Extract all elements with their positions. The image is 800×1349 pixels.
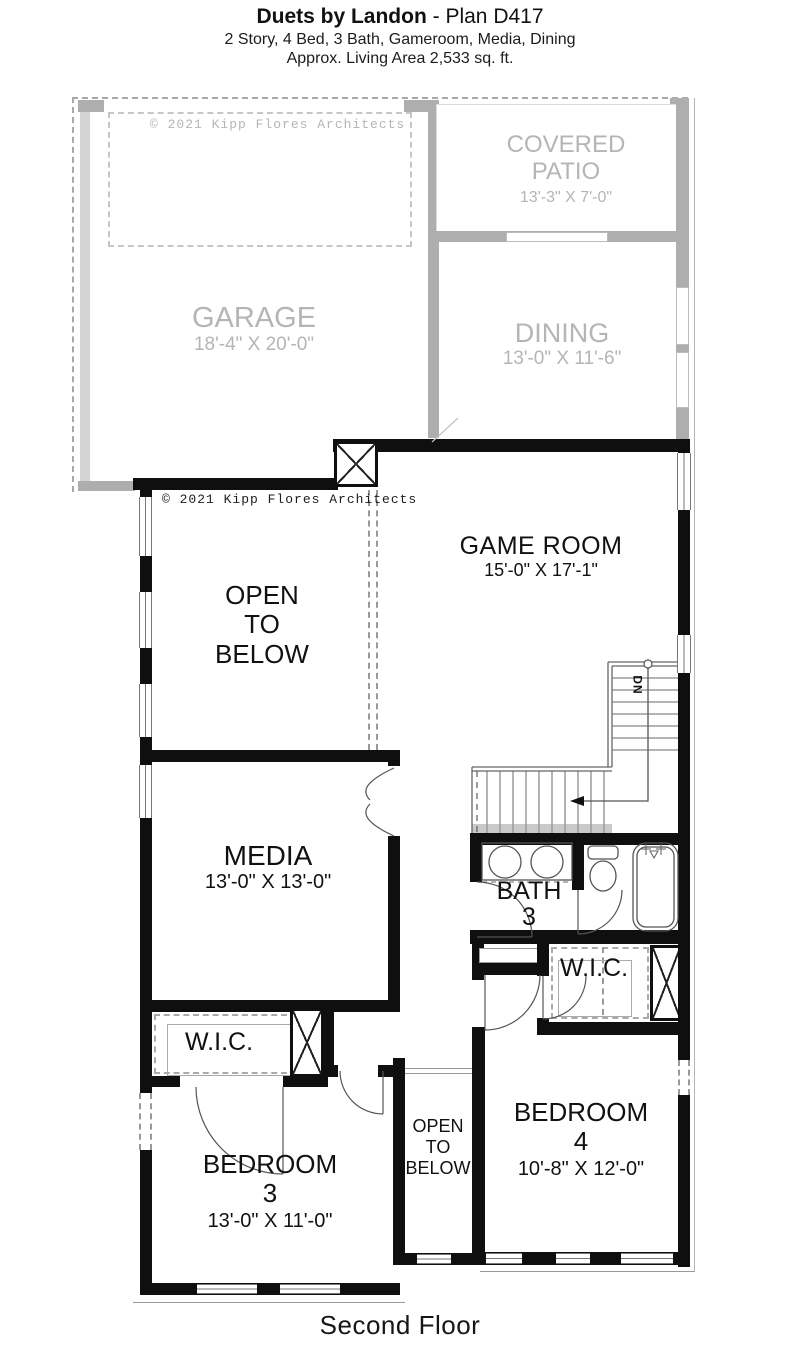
bedroom4-number: 4 [514, 1127, 648, 1156]
stairs-down-label: DN [631, 675, 645, 694]
stair-rails [472, 662, 678, 833]
stair-treads-upper [612, 678, 678, 750]
wic-left-name: W.I.C. [185, 1028, 253, 1056]
door-arc [485, 975, 540, 1030]
bedroom4-dims: 10'-8" X 12'-0" [514, 1158, 648, 1180]
plan-linework [0, 0, 800, 1349]
door-leaf [366, 804, 394, 836]
bath3-number: 3 [497, 904, 562, 930]
sink-bowl [531, 846, 563, 878]
game-room-label: GAME ROOM 15'-0" X 17'-1" [460, 532, 623, 580]
floor-plan: Duets by Landon - Plan D417 2 Story, 4 B… [0, 0, 800, 1349]
open-below-line: BELOW [215, 640, 309, 669]
door-leaf [366, 768, 394, 800]
bedroom4-label: BEDROOM 4 10'-8" X 12'-0" [514, 1098, 648, 1180]
open-below-line: OPEN [215, 581, 309, 610]
open-below-line: TO [215, 610, 309, 639]
toilet-bowl [590, 861, 616, 891]
media-label: MEDIA 13'-0" X 13'-0" [205, 840, 331, 894]
game-room-dims: 15'-0" X 17'-1" [460, 560, 623, 580]
ghost-door-leaf [432, 418, 458, 442]
wic-left-label: W.I.C. [185, 1028, 253, 1056]
sink-bowl [489, 846, 521, 878]
bath3-label: BATH 3 [497, 878, 562, 931]
bath3-name: BATH [497, 878, 562, 904]
game-room-name: GAME ROOM [460, 532, 623, 560]
tub-faucet-icon [641, 844, 666, 858]
open-below-line: BELOW [405, 1158, 470, 1179]
bathtub-inner [637, 847, 674, 927]
open-below-large-label: OPEN TO BELOW [215, 581, 309, 669]
open-below-line: OPEN [405, 1116, 470, 1137]
wic-right-name: W.I.C. [560, 954, 628, 982]
bedroom3-label: BEDROOM 3 13'-0" X 11'-0" [203, 1150, 337, 1232]
floor-name: Second Floor [0, 1310, 800, 1341]
stair-treads-lower [487, 771, 604, 833]
door-arc [543, 976, 586, 1019]
open-below-line: TO [405, 1137, 470, 1158]
bedroom3-name: BEDROOM [203, 1150, 337, 1179]
toilet-tank [588, 846, 618, 859]
staircase [472, 660, 678, 833]
copyright-second-floor: © 2021 Kipp Flores Architects [162, 492, 417, 507]
open-below-small-label: OPEN TO BELOW [405, 1116, 470, 1180]
media-name: MEDIA [205, 840, 331, 871]
bedroom4-name: BEDROOM [514, 1098, 648, 1127]
wic-right-label: W.I.C. [560, 954, 628, 982]
door-arc [578, 890, 622, 934]
media-dims: 13'-0" X 13'-0" [205, 871, 331, 893]
bedroom3-number: 3 [203, 1179, 337, 1208]
door-arc [340, 1071, 383, 1114]
bedroom3-dims: 13'-0" X 11'-0" [203, 1210, 337, 1232]
